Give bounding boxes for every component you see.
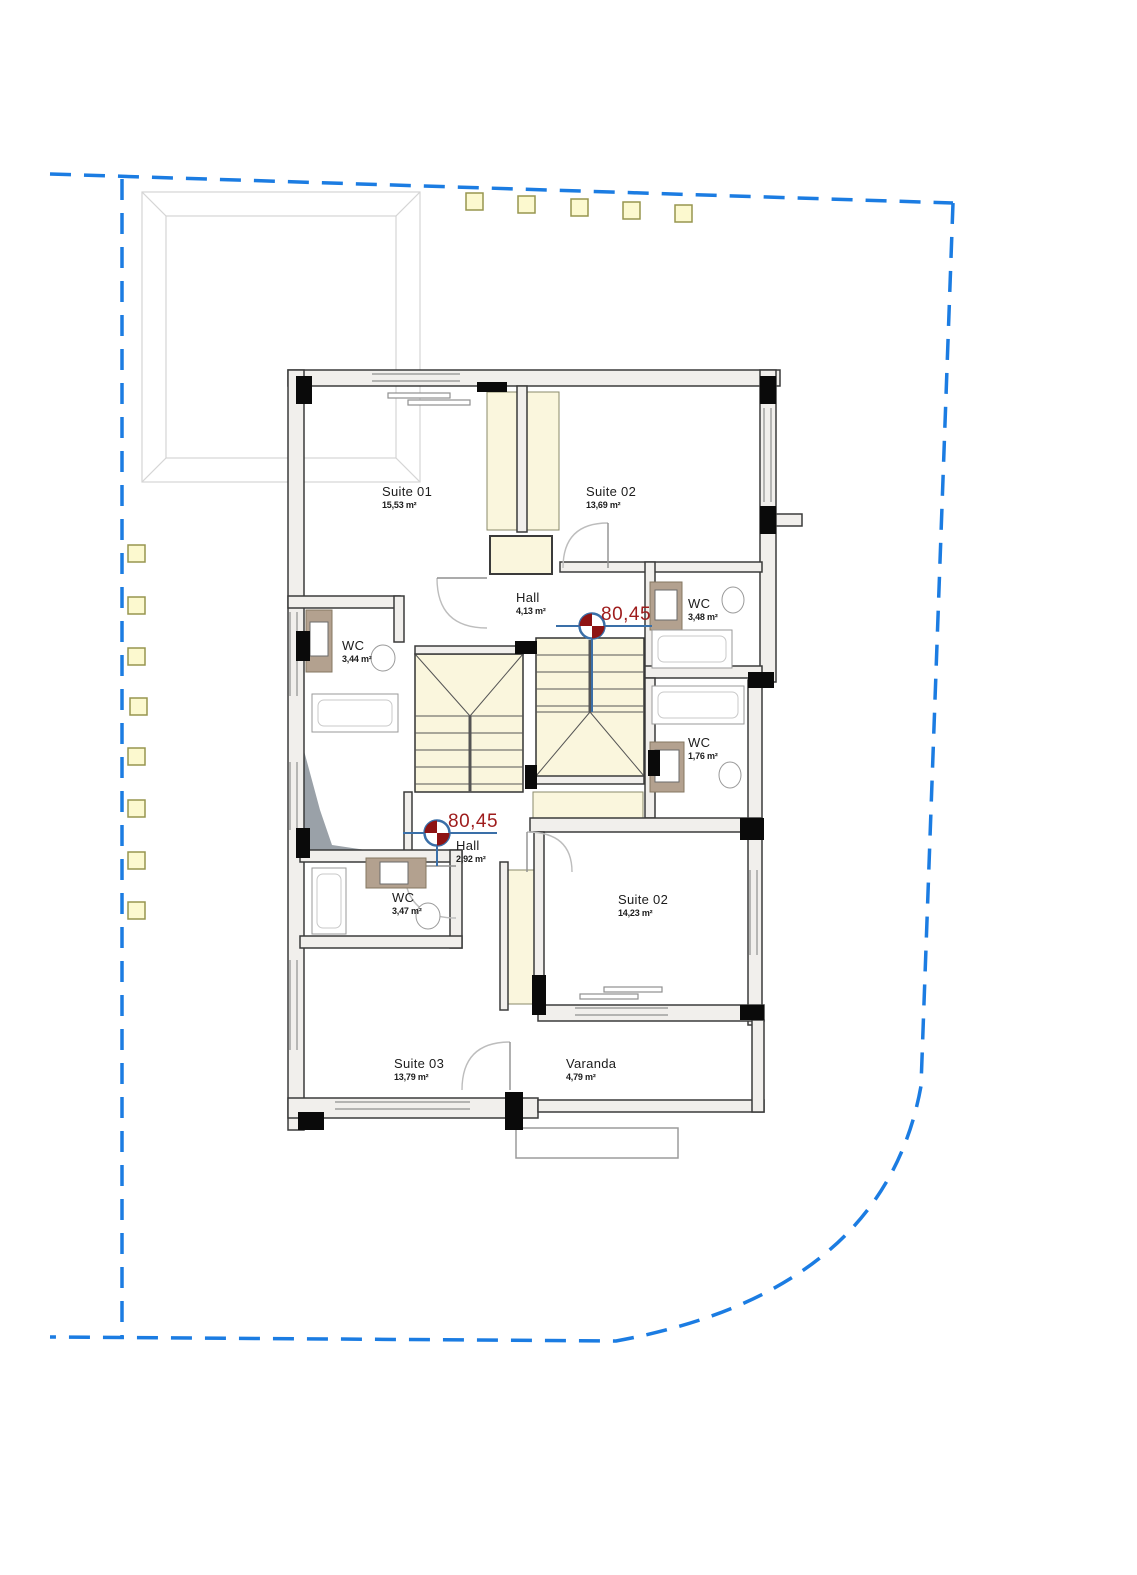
sink-icon bbox=[310, 622, 328, 656]
vestibule-closet bbox=[490, 536, 552, 574]
door-swing-icon bbox=[462, 1042, 510, 1090]
wall bbox=[288, 596, 400, 608]
toilet-icon bbox=[719, 762, 741, 788]
wall bbox=[415, 646, 523, 654]
wardrobe bbox=[487, 392, 518, 530]
floor-plan-page: Suite 01 15,53 m² Suite 02 13,69 m² Hall… bbox=[0, 0, 1137, 1575]
wall bbox=[536, 776, 644, 784]
room-name: Suite 01 bbox=[382, 484, 432, 500]
column bbox=[296, 631, 310, 661]
skylight-marker bbox=[571, 199, 588, 216]
room-name: Suite 02 bbox=[586, 484, 636, 500]
room-label-suite-03: Suite 03 13,79 m² bbox=[394, 1056, 444, 1082]
room-name: WC bbox=[392, 890, 422, 906]
wall bbox=[500, 862, 508, 1010]
room-area: 13,69 m² bbox=[586, 500, 636, 511]
room-label-suite-02-top: Suite 02 13,69 m² bbox=[586, 484, 636, 510]
room-area: 2,92 m² bbox=[456, 854, 486, 865]
skylight-marker bbox=[518, 196, 535, 213]
lower-parapet-outline bbox=[516, 1128, 678, 1158]
skylight-marker bbox=[128, 748, 145, 765]
wall bbox=[517, 386, 527, 532]
toilet-icon bbox=[722, 587, 744, 613]
column bbox=[740, 818, 764, 840]
wall bbox=[748, 680, 762, 1025]
wall bbox=[450, 850, 462, 948]
room-name: Varanda bbox=[566, 1056, 616, 1072]
skylight-marker bbox=[128, 800, 145, 817]
room-label-hall-bottom: Hall 2,92 m² bbox=[456, 838, 486, 864]
slider-symbol bbox=[580, 994, 638, 999]
roof-wedge bbox=[303, 747, 414, 857]
column bbox=[648, 750, 660, 776]
column bbox=[296, 376, 312, 404]
column bbox=[748, 672, 774, 688]
closet-strip-vertical bbox=[508, 870, 534, 1004]
room-label-suite-02-bottom: Suite 02 14,23 m² bbox=[618, 892, 668, 918]
room-name: WC bbox=[688, 596, 718, 612]
room-name: Hall bbox=[516, 590, 546, 606]
level-annotation-bottom: 80,45 bbox=[448, 811, 498, 833]
room-label-suite-01: Suite 01 15,53 m² bbox=[382, 484, 432, 510]
wall bbox=[394, 596, 404, 642]
room-label-wc-mid-right: WC 1,76 m² bbox=[688, 735, 718, 761]
skylight-marker bbox=[623, 202, 640, 219]
column bbox=[515, 641, 537, 654]
wardrobe bbox=[526, 392, 559, 530]
column bbox=[760, 376, 776, 404]
skylight-marker bbox=[128, 902, 145, 919]
wall bbox=[752, 1020, 764, 1112]
skylight-marker bbox=[128, 852, 145, 869]
slider-symbol bbox=[408, 400, 470, 405]
skylight-marker bbox=[466, 193, 483, 210]
room-area: 3,48 m² bbox=[688, 612, 718, 623]
closet-strip-horizontal bbox=[533, 792, 643, 820]
column bbox=[760, 506, 776, 534]
room-name: Suite 02 bbox=[618, 892, 668, 908]
wall bbox=[530, 818, 762, 832]
room-area: 3,47 m² bbox=[392, 906, 422, 917]
room-area: 1,76 m² bbox=[688, 751, 718, 762]
wall bbox=[538, 1100, 764, 1112]
wall bbox=[560, 562, 762, 572]
skylight-marker bbox=[128, 545, 145, 562]
room-area: 15,53 m² bbox=[382, 500, 432, 511]
room-label-wc-left: WC 3,44 m² bbox=[342, 638, 372, 664]
room-area: 3,44 m² bbox=[342, 654, 372, 665]
column bbox=[296, 828, 310, 858]
room-name: Hall bbox=[456, 838, 486, 854]
skylight-marker bbox=[130, 698, 147, 715]
column bbox=[477, 382, 507, 392]
sink-icon bbox=[380, 862, 408, 884]
room-name: Suite 03 bbox=[394, 1056, 444, 1072]
slider-symbol bbox=[388, 393, 450, 398]
adjacent-roof-outline bbox=[142, 192, 420, 482]
wall bbox=[300, 936, 462, 948]
room-label-wc-bottom-left: WC 3,47 m² bbox=[392, 890, 422, 916]
level-annotation-top: 80,45 bbox=[601, 604, 651, 626]
toilet-icon bbox=[371, 645, 395, 671]
floor-plan-canvas bbox=[0, 0, 1137, 1575]
room-area: 13,79 m² bbox=[394, 1072, 444, 1083]
column bbox=[298, 1112, 324, 1130]
door-swing-icon bbox=[437, 578, 487, 628]
room-label-wc-top-right: WC 3,48 m² bbox=[688, 596, 718, 622]
wall bbox=[288, 1098, 538, 1118]
room-area: 4,79 m² bbox=[566, 1072, 616, 1083]
room-label-hall-top: Hall 4,13 m² bbox=[516, 590, 546, 616]
column bbox=[740, 1005, 764, 1020]
slider-symbol bbox=[604, 987, 662, 992]
column bbox=[532, 975, 546, 1015]
skylight-marker bbox=[128, 597, 145, 614]
wall bbox=[288, 370, 780, 386]
room-name: WC bbox=[342, 638, 372, 654]
wall bbox=[404, 792, 412, 854]
skylight-marker bbox=[675, 205, 692, 222]
room-area: 14,23 m² bbox=[618, 908, 668, 919]
room-label-varanda: Varanda 4,79 m² bbox=[566, 1056, 616, 1082]
sink-icon bbox=[655, 590, 677, 620]
room-area: 4,13 m² bbox=[516, 606, 546, 617]
skylight-marker bbox=[128, 648, 145, 665]
room-name: WC bbox=[688, 735, 718, 751]
column bbox=[525, 765, 537, 789]
wall bbox=[776, 514, 802, 526]
column bbox=[505, 1092, 523, 1130]
